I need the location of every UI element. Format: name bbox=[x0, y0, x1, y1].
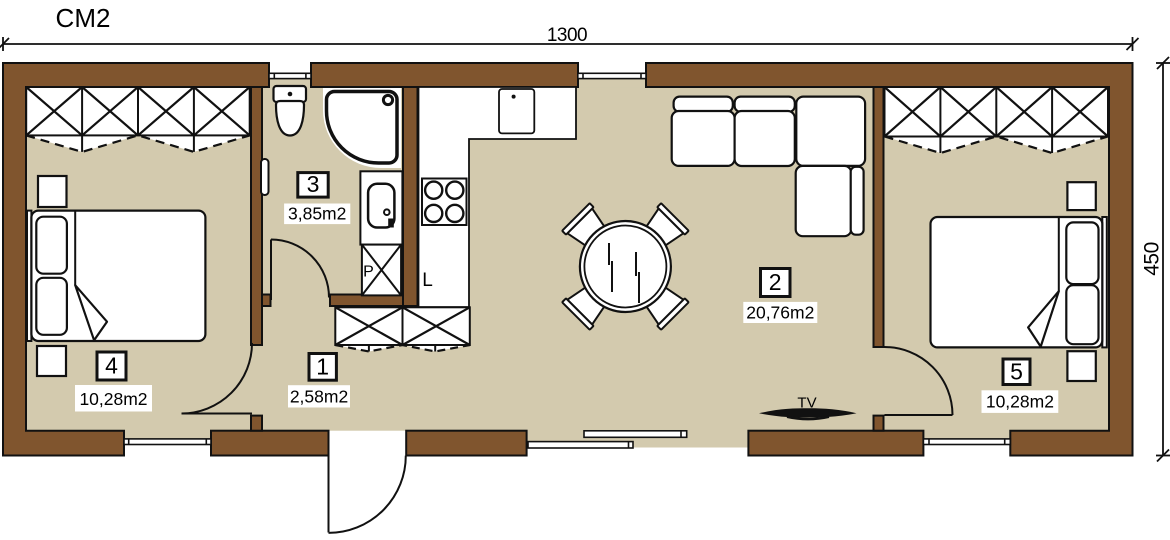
svg-text:P: P bbox=[363, 264, 374, 281]
svg-text:L: L bbox=[422, 270, 433, 291]
svg-text:2: 2 bbox=[769, 269, 782, 295]
svg-text:CM2: CM2 bbox=[56, 3, 111, 33]
svg-text:3,85m2: 3,85m2 bbox=[288, 204, 346, 224]
svg-text:10,28m2: 10,28m2 bbox=[986, 392, 1054, 412]
svg-text:2,58m2: 2,58m2 bbox=[290, 387, 348, 407]
svg-text:3: 3 bbox=[307, 171, 320, 197]
svg-text:4: 4 bbox=[105, 353, 118, 379]
svg-text:1: 1 bbox=[316, 354, 329, 380]
svg-text:450: 450 bbox=[1141, 242, 1164, 276]
svg-text:20,76m2: 20,76m2 bbox=[746, 303, 814, 323]
svg-text:10,28m2: 10,28m2 bbox=[79, 389, 147, 409]
svg-text:1300: 1300 bbox=[547, 25, 587, 46]
svg-text:TV: TV bbox=[797, 395, 816, 412]
svg-text:5: 5 bbox=[1010, 359, 1023, 385]
